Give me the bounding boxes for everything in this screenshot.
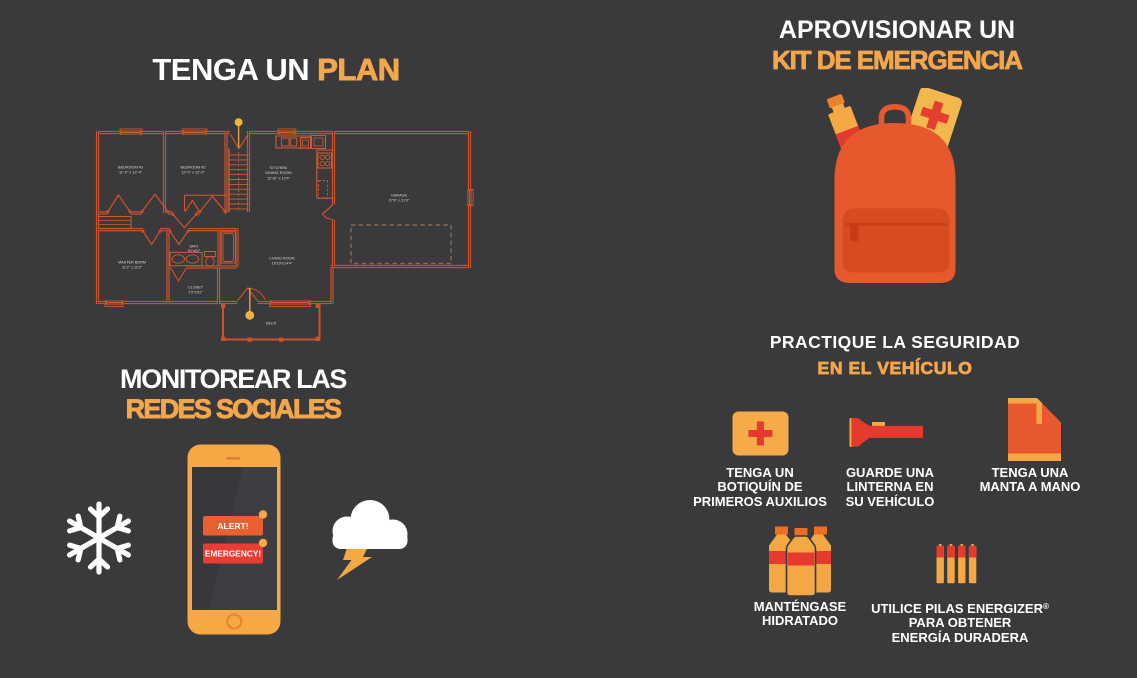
svg-text:BEDROOM #212'-0" x 12'-0": BEDROOM #212'-0" x 12'-0" (181, 166, 206, 175)
svg-text:MASTER BDRM11'2" x 11'2": MASTER BDRM11'2" x 11'2" (118, 261, 146, 270)
svg-text:EMERGENCY!: EMERGENCY! (205, 549, 261, 559)
svg-text:ALERT!: ALERT! (217, 521, 248, 531)
svg-text:BATH5'0"x8'0": BATH5'0"x8'0" (188, 245, 200, 254)
svg-text:LIVING ROOM16'10"x14'4": LIVING ROOM16'10"x14'4" (269, 257, 294, 266)
svg-text:DECK: DECK (266, 322, 277, 326)
svg-text:CLOSET7'2"x5'2": CLOSET7'2"x5'2" (188, 286, 204, 295)
svg-text:BEDROOM #311'-0" x 12'-4": BEDROOM #311'-0" x 12'-4" (118, 166, 143, 175)
svg-text:KITCHEN/DINING ROOM12'10" x 12: KITCHEN/DINING ROOM12'10" x 12'4" (265, 166, 291, 180)
svg-text:GARAGE27'8" x 21'0": GARAGE27'8" x 21'0" (389, 194, 410, 203)
